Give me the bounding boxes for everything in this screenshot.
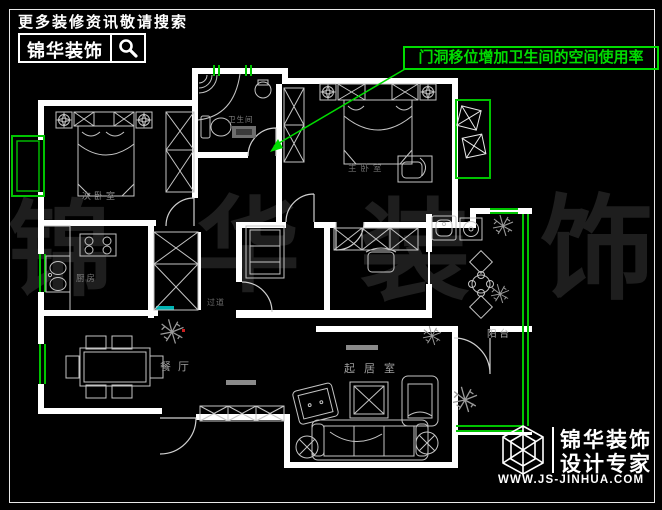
search-icon: [112, 35, 144, 61]
logo-divider: [552, 427, 554, 473]
footer-website: WWW.JS-JINHUA.COM: [498, 474, 644, 486]
annotation-callout: 门洞移位增加卫生间的空间使用率: [403, 46, 659, 70]
brand-name: 锦华装饰: [20, 35, 110, 61]
tagline-text: 更多装修资讯敬请搜索: [18, 11, 188, 32]
logo-cube-icon: [498, 424, 548, 478]
brand-search-box: 锦华装饰: [18, 33, 146, 63]
image-border-frame: [9, 9, 655, 503]
floorplan-poster: 锦 华 装 饰: [0, 0, 662, 510]
